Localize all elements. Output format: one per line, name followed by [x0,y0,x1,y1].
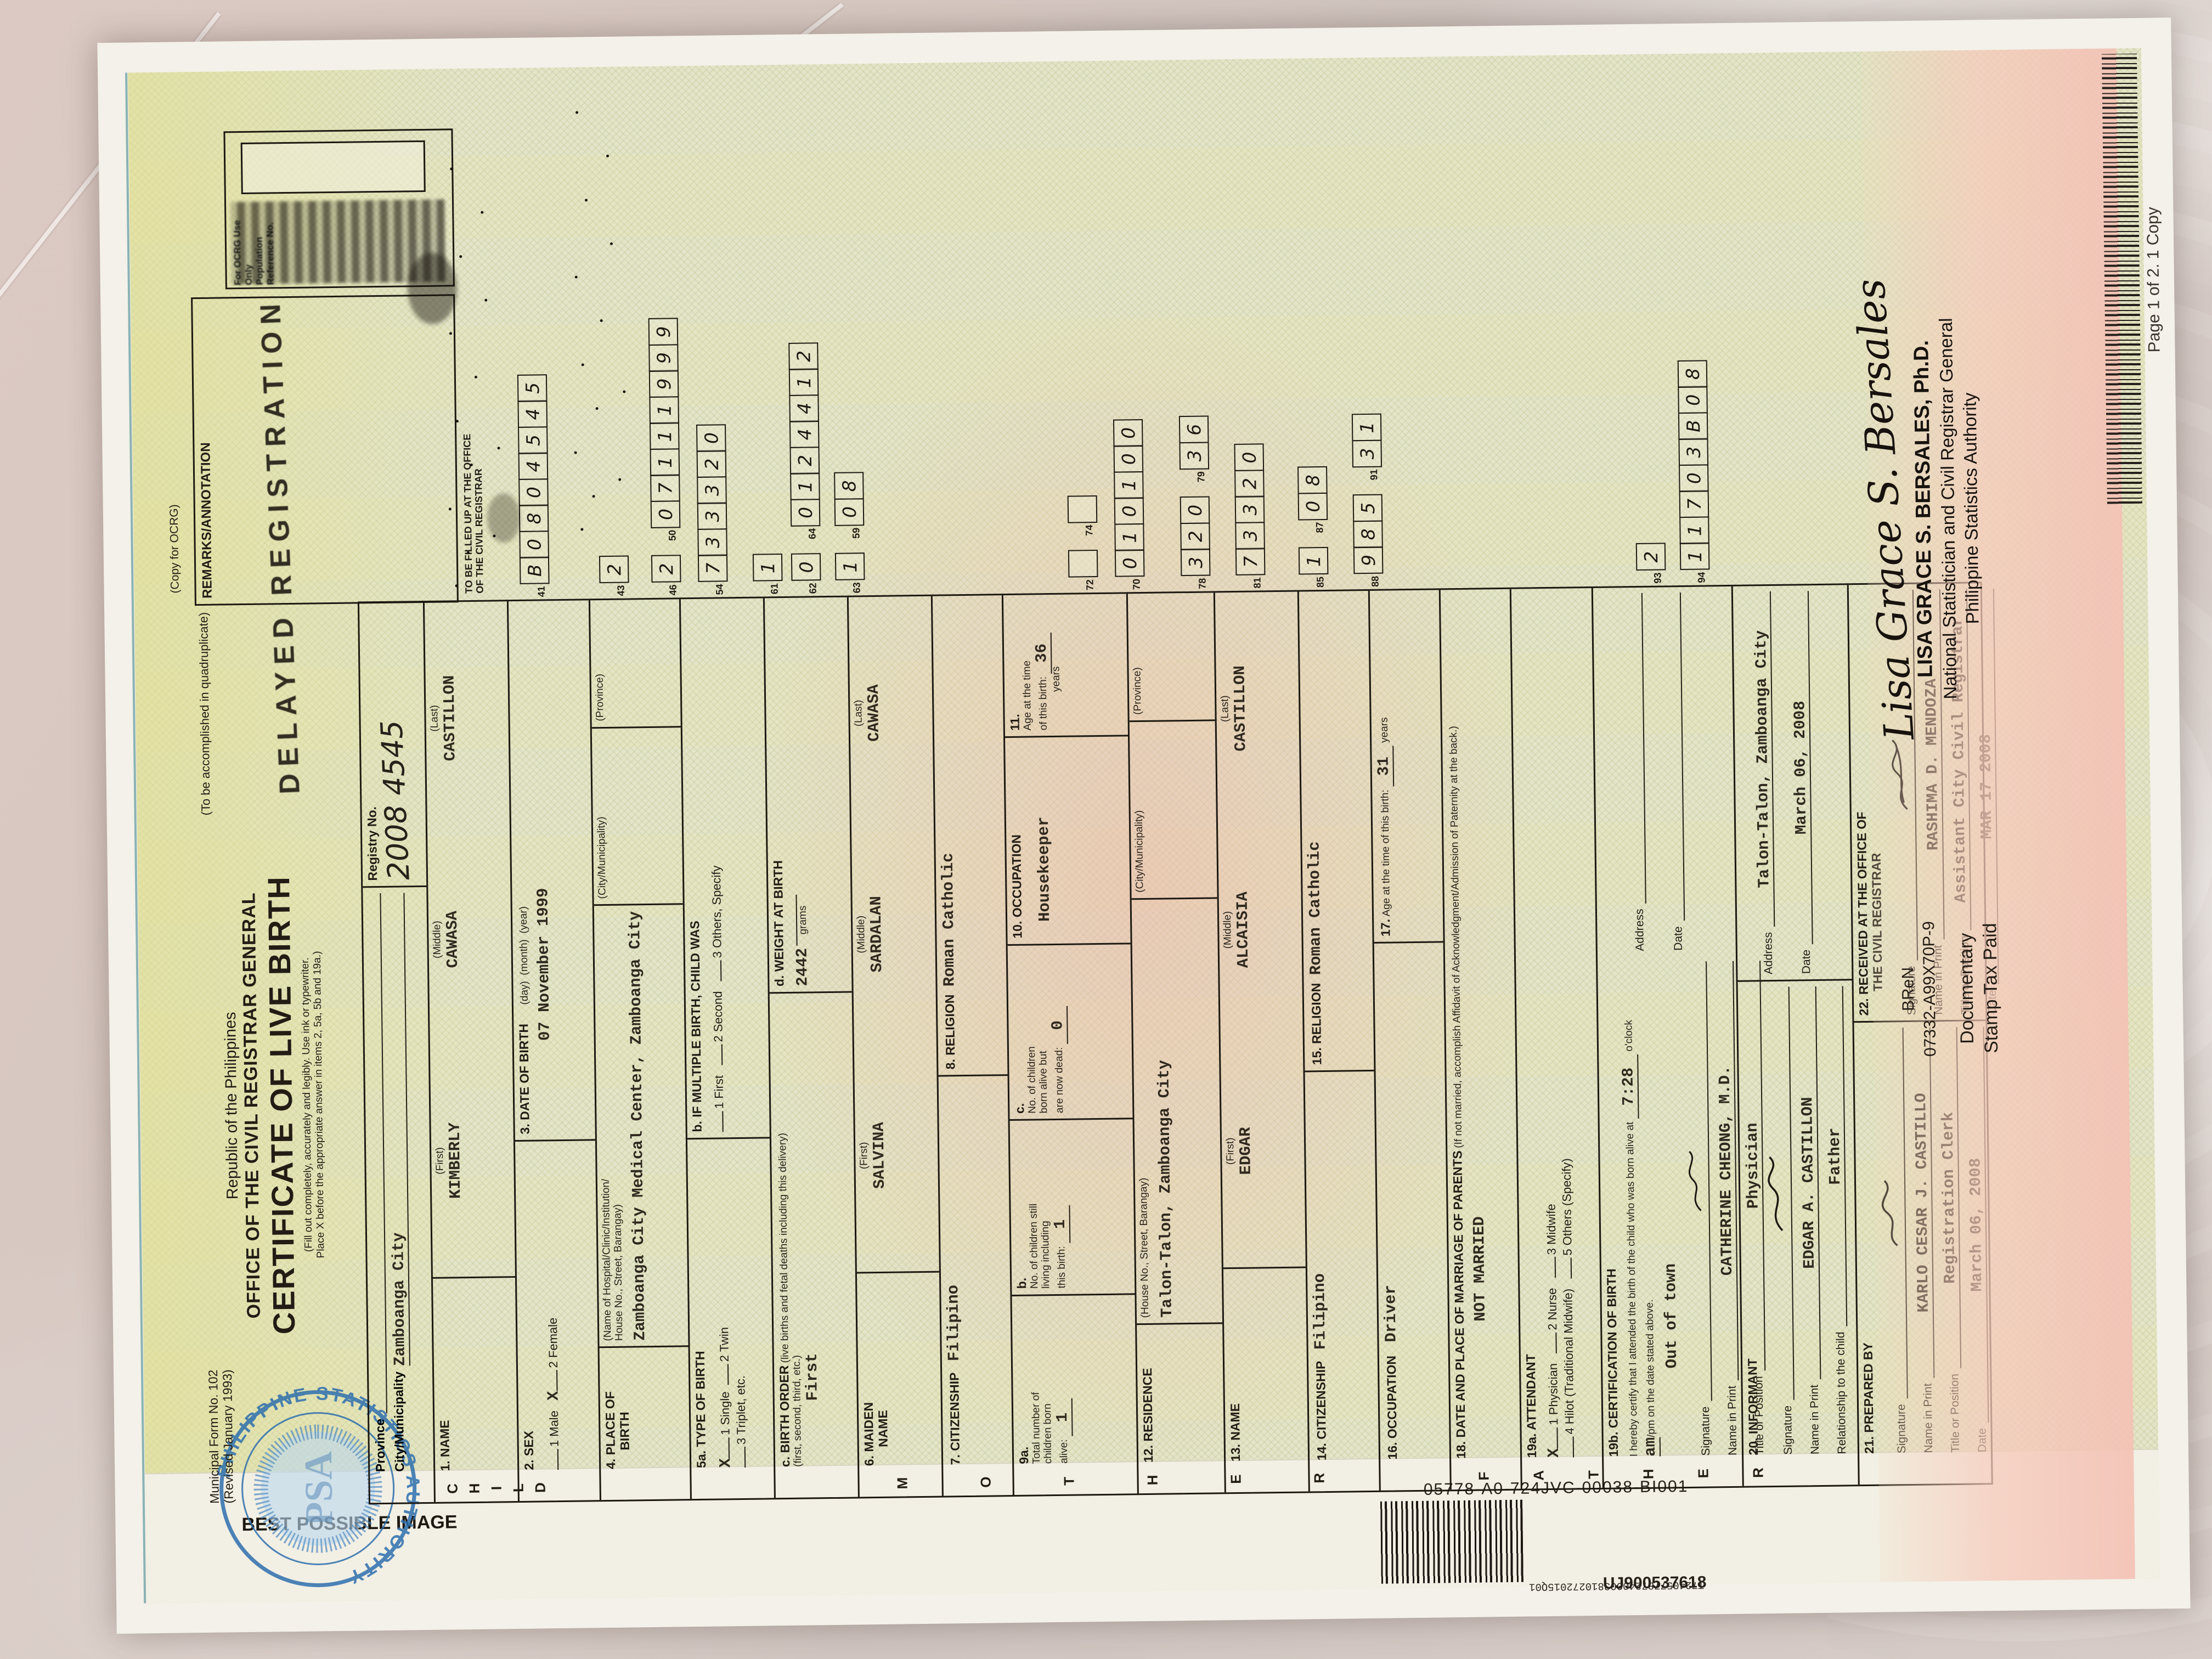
side-letter: C [444,1477,461,1499]
ocrg-row: 932 [1636,543,1666,584]
side-letter: A [1530,1464,1547,1486]
ocrg-item-label: 62 [808,583,821,594]
ocrg-row: 432 [599,556,629,596]
ocrg-cell: 8 [1678,360,1708,388]
form-table: Province City/MunicipalityZamboanga City… [358,582,1993,1504]
ocrg-cell: 3 [697,476,727,504]
ocrg-row: 7274 [1068,495,1098,591]
ocrg-cell: 0 [1679,464,1709,492]
informant-signature [1765,1152,1788,1234]
secpa-serial: UJ900537618 [1603,1573,1707,1593]
ocrg-cell: 0 [1114,497,1144,525]
ink-smudge [407,252,458,324]
certifier-address-note: Out of town [1658,962,1681,1369]
ocrg-cell: 2 [1180,522,1210,550]
ocrg-item-88: 88985 [1353,494,1384,587]
ocrg-cell: 9 [648,344,679,372]
ink-speckles [580,528,583,531]
ocrg-cell: 3 [1179,442,1209,470]
ocrg-row: 889859131 [1352,414,1384,587]
seal-center-text: PSA [296,1451,341,1526]
ocrg-cell: 0 [1115,549,1145,577]
informant-address: Talon-Talon, Zamboanga City [1752,591,1775,927]
ocrg-cell: 1 [1679,516,1709,544]
ocrg-cell: 2 [1636,543,1666,571]
remarks-annotation-box: REMARKS/ANNOTATION [191,294,459,606]
ocrg-item-label: 50 [667,530,680,541]
ocrg-cell: 1 [1299,547,1329,575]
ocrg-item-93: 932 [1636,543,1666,584]
side-letter: R [1750,1462,1767,1483]
ocrg-row: 9411703B08 [1678,360,1710,583]
ocrg-item-59: 5908 [834,472,864,539]
ink-speckles [455,584,458,587]
ocrg-row: 8518708 [1297,466,1329,588]
ocrg-cell: 1 [753,554,783,582]
ocrg-cell: 1 [1114,523,1144,551]
informant-name: EDGAR A. CASTILLON [1797,986,1821,1379]
ocrg-item-41: 41B0804545 [517,374,550,597]
ocrg-cell: 8 [834,472,864,500]
ocrg-item-label: 74 [1084,524,1097,535]
ocrg-cell [1068,495,1098,523]
remarks-heading: REMARKS/ANNOTATION [193,299,220,604]
ocrg-cell: 0 [1678,386,1708,414]
ocrg-cell: 1 [650,448,680,476]
civil-registrar-general-block: Lisa Grace S. Bersales LISA GRACE S. BER… [1857,165,1985,853]
father-age: 31 [1374,746,1394,787]
ocrg-cell: 4 [789,394,819,422]
ocrg-item-label: 87 [1314,522,1328,533]
father-first-name: EDGAR [1235,1040,1256,1262]
ocrg-item-label: 72 [1085,579,1098,590]
ocrg-item-74: 74 [1068,495,1098,536]
ocrg-cell: 2 [651,555,681,583]
ocrg-item-79: 7936 [1179,416,1209,483]
ocrg-cell: 3 [1678,438,1708,466]
ocrg-cell: 4 [789,421,820,449]
side-letter: E [1227,1468,1244,1490]
ocrg-cell: 7 [1235,548,1266,576]
ocrg-cell [1068,550,1098,578]
informant-relationship: Father [1824,986,1847,1326]
ocrg-cell: 1 [790,473,820,501]
side-letter: T [1585,1464,1602,1486]
child-first-name: KIMBERLY [445,1050,466,1272]
ocrg-cell: 8 [1297,466,1328,494]
child-middle-name: CAWASA [442,828,463,1050]
sex-female-mark: X [544,1391,562,1401]
ocrg-cell: 0 [1234,444,1265,472]
type-of-birth-single-mark: X [716,1458,735,1468]
ocrg-cell: 0 [1298,493,1328,521]
ink-smudge [487,493,521,543]
father-citizenship: Filipino [1311,1273,1330,1350]
weight-value: 2442 [793,948,811,986]
ocrg-cell: 0 [696,424,726,452]
ocrg-cell: B [1678,412,1708,440]
side-letter: F [1475,1465,1492,1487]
ocrg-cell: 0 [651,500,681,528]
ocrg-cell: 8 [1353,521,1383,549]
side-letter: T [1060,1470,1077,1492]
ocrg-cell: 2 [788,342,819,370]
ocrg-item-label: 46 [668,584,681,595]
ocrg-row: 41B0804545 [517,374,550,597]
ocrg-cell: 0 [1180,496,1210,524]
mother-occupation: Housekeeper [1034,743,1054,922]
ocrg-item-label: 78 [1197,578,1210,589]
side-letter: E [1695,1462,1712,1484]
ocrg-item-label: 93 [1652,572,1666,583]
ocrg-cell: 5 [517,374,548,402]
ocrg-item-87: 8708 [1297,466,1328,533]
ocrg-item-63: 631 [835,553,865,594]
certifier-name: CATHERINE CHEONG, M.D. [1714,961,1739,1380]
to-be-filled-label: TO BE FILLED UP AT THE OFFICE OF THE CIV… [461,429,486,594]
ocrg-row: 4625007111999 [648,318,681,596]
ocrg-cell: 1 [1680,543,1710,571]
ocrg-cell: 9 [649,370,679,398]
bottom-barcode [2102,54,2142,504]
ocrg-row: 70010100 [1113,419,1145,590]
ocrg-cell: 2 [599,556,629,584]
ocrg-item-label: 54 [714,584,728,595]
ocrg-cell: 1 [789,369,819,397]
ocrg-item-label: 70 [1131,579,1145,590]
ocrg-cell: 2 [1234,470,1265,498]
ocrg-cell: 3 [697,503,727,531]
father-occupation: Driver [1381,1285,1400,1342]
child-last-name: CASTILLON [439,607,460,829]
ocrg-cell: 3 [697,528,727,556]
certifier-signature [1686,1148,1705,1214]
ocrg-item-78: 78320 [1180,496,1211,589]
side-letter: H [1640,1463,1657,1485]
ocrg-cell: 9 [1353,546,1384,574]
ocrg-item-91: 9131 [1352,414,1382,481]
ocrg-cell: 0 [518,478,549,506]
ocrg-item-label: 63 [851,582,865,593]
ocrg-item-label: 88 [1369,576,1383,587]
ocrg-cell: 0 [1113,419,1143,447]
birth-certificate-document: BEST POSSIBLE IMAGE 05778-A0-724JVC-0003… [97,18,2190,1634]
reference-no-box [241,140,426,194]
ocrg-cell: 1 [1352,414,1382,442]
ocrg-cell: 3 [1352,440,1382,468]
mother-age: 36 [1032,633,1052,674]
side-letter: O [977,1471,994,1493]
ocrg-cell: 0 [519,531,549,558]
birth-order-value: First [799,998,822,1401]
mother-religion: Roman Catholic [939,853,959,986]
ocrg-item-label: 91 [1368,469,1382,480]
ocrg-item-72: 72 [1068,550,1098,590]
ocrg-item-64: 640124412 [788,342,820,539]
ocrg-cell: 7 [650,475,680,503]
ocrg-item-label: 81 [1251,577,1265,588]
ocrg-row: 54733320 [696,424,728,595]
residence-value: Talon-Talon, Zamboanga City [1153,905,1176,1318]
attendant-physician-mark: X [1545,1448,1563,1458]
ocrg-cell: 3 [1235,522,1265,550]
children-born-alive: 1 [1053,1398,1073,1437]
ocrg-cell: 8 [519,505,549,533]
ocrg-row: 8173320 [1234,444,1266,589]
ocrg-cell: 7 [698,555,728,583]
ocrg-item-label: 43 [616,585,629,596]
children-now-dead: 0 [1048,1006,1068,1045]
ocrg-item-label: 59 [850,528,864,539]
place-of-birth-value: Zamboanga City Medical Center, Zamboanga… [626,911,650,1340]
ocrg-item-46: 462 [651,555,681,596]
ocrg-cell: 2 [790,447,820,475]
ocrg-cell: 4 [518,453,549,481]
ocrg-cell: 0 [791,554,821,582]
copy-for-ocrg-note: (Copy for OCRG) [168,504,182,593]
children-still-living: 1 [1051,1205,1070,1244]
side-letter: H [1144,1469,1161,1491]
photo-of-birth-certificate: { "page_label": "Page 1 of 2. 1 Copy", "… [0,0,2212,1659]
mother-citizenship: Filipino [944,1285,963,1362]
father-last-name: CASTILLON [1230,598,1251,820]
side-letter: I [488,1477,505,1499]
ocrg-item-50: 5007111999 [648,318,681,541]
page-label: Page 1 of 2. 1 Copy [2143,207,2164,353]
side-letter: M [894,1472,911,1494]
ocrg-item-61: 611 [753,554,783,594]
ocrg-row: 611 [753,554,783,594]
ocrg-item-85: 851 [1299,547,1329,588]
father-middle-name: ALCAISIA [1233,819,1254,1041]
mother-first-name: SALVINA [869,1045,890,1266]
ocrg-item-label: 85 [1314,577,1328,588]
ocrg-item-62: 620 [791,554,821,594]
ocrg-cell: 3 [1235,496,1265,524]
ocrg-cell: 2 [697,450,727,478]
ocrg-cell: 9 [648,318,679,346]
ocrg-item-81: 8173320 [1234,444,1266,589]
ocrg-cell: 1 [835,553,865,581]
side-letter: H [466,1477,483,1499]
ocrg-item-label: 41 [536,586,550,597]
date-of-birth-value: 07 November 1999 [531,606,554,1041]
ocrg-cell: 1 [650,422,680,450]
ocrg-row: 620640124412 [788,342,821,594]
secpa-barcode [1380,1500,1523,1584]
ocrg-item-label: 64 [806,528,820,539]
ocrg-cell: 4 [517,400,548,428]
informant-date: March 06, 2008 [1790,591,1813,944]
ocrg-cell: B [520,557,550,585]
mother-middle-name: SARDALAN [866,823,887,1045]
ocrg-row: 783207936 [1179,416,1211,589]
ocrg-row: 6315908 [834,472,865,594]
ocrg-item-43: 432 [599,556,629,596]
psa-footer-band: BReN07332-A99X70P-9 DocumentaryStamp Tax… [1861,48,2135,1582]
ocrg-cell: 0 [1114,445,1144,473]
ocrg-item-label: 94 [1696,572,1709,583]
ocrg-cell: 1 [649,396,679,424]
ocrg-cell: 6 [1179,416,1209,444]
ocrg-item-94: 9411703B08 [1678,360,1710,583]
ocrg-cell: 1 [1114,471,1144,499]
ocrg-cell: 0 [791,499,821,527]
ocrg-item-54: 54733320 [696,424,728,595]
ocrg-item-label: 61 [769,583,783,594]
marriage-value: NOT MARRIED [1463,595,1489,1321]
ocrg-cell: 3 [1181,549,1211,577]
ocrg-cell: 5 [1353,494,1383,522]
ocrg-cell: 0 [834,498,865,526]
ocrg-item-label: 79 [1195,471,1209,482]
ocrg-code-boxes: 41B0804545432462500711199954733320611620… [99,136,104,602]
form-header: Republic of the Philippines OFFICE OF TH… [219,781,329,1429]
birth-time: 7:28 [1619,1054,1639,1119]
ocrg-cell: 7 [1679,490,1709,518]
father-religion: Roman Catholic [1305,841,1325,975]
side-letter: D [532,1476,549,1498]
side-letter: L [510,1477,527,1499]
city-municipality-value: Zamboanga City [390,1232,409,1366]
ocrg-item-70: 70010100 [1113,419,1145,590]
mother-last-name: CAWASA [864,602,884,824]
side-letter: R [1311,1467,1328,1489]
bren-block: BReN07332-A99X70P-9 DocumentaryStamp Tax… [1895,812,2005,1165]
ocrg-cell: 5 [518,426,548,454]
